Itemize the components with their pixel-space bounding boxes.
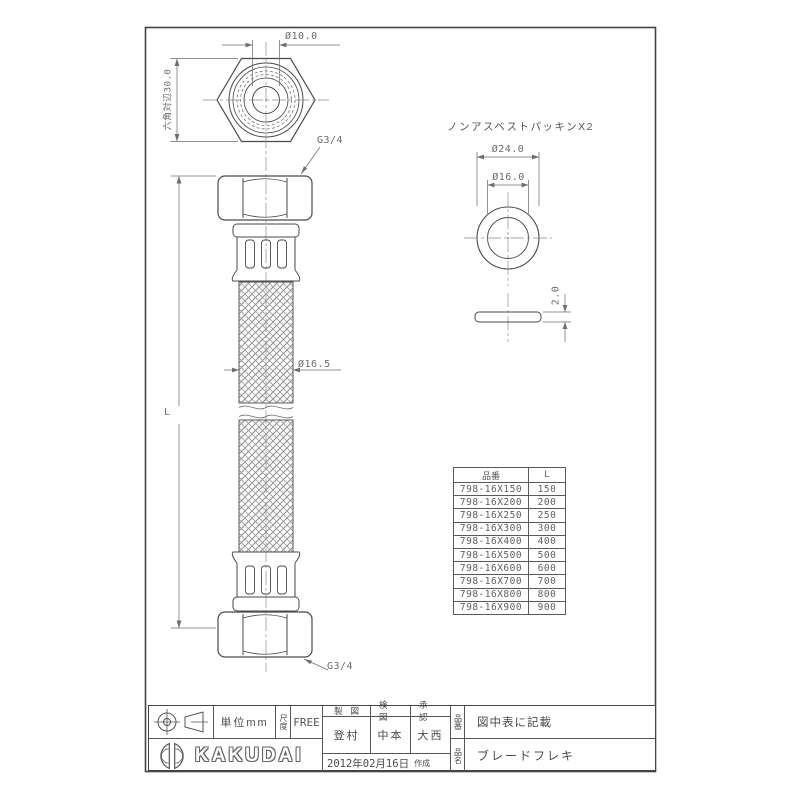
table-row: 798-16X900 900 [454,601,566,614]
scale-label: 尺度 [276,706,291,739]
length-cell: 500 [529,548,566,561]
length-cell: 900 [529,601,566,614]
length-cell: 300 [529,522,566,535]
length-cell: 800 [529,588,566,601]
length-cell: 400 [529,535,566,548]
part-no-cell: 798-16X900 [454,601,529,614]
packing-centerlines [464,192,552,342]
drawn-label: 製図 [334,705,367,717]
length-cell: 700 [529,575,566,588]
part-no-cell: 798-16X400 [454,535,529,548]
packing-id-dim-label: Ø16.0 [486,172,531,183]
brand-cell: KAKUDAI [149,739,323,772]
third-angle-projection-icon [151,707,211,737]
length-dim-label: L [162,407,173,418]
size-table: 品番 L 798-16X150 150 798-16X200 200 798-1… [453,467,566,615]
drawn-by-cell: 登村 [323,717,371,754]
table-row: 798-16X300 300 [454,522,566,535]
part-no-cell: 798-16X800 [454,588,529,601]
date-cell: 2012年02月16日 作成 [323,754,451,772]
product-name-label-cell: 品名 [451,739,465,772]
table-row: 798-16X200 200 [454,496,566,509]
unit-cell: 単位mm [214,706,276,739]
scale-value: FREE [291,716,322,729]
across-flats-dim-label: 六角対辺30.0 [161,50,174,150]
drawn-header-cell: 製図 [323,706,371,717]
table-row: 798-16X500 500 [454,548,566,561]
table-row: 798-16X800 800 [454,588,566,601]
product-name-label: 品名 [454,748,462,764]
brand-name: KAKUDAI [195,745,304,767]
part-no-label-cell: 品番 [451,706,465,739]
part-no-cell: 798-16X600 [454,562,529,575]
table-row: 798-16X700 700 [454,575,566,588]
drawn-by: 登村 [334,727,360,743]
approved-header-cell: 承認 [411,706,451,717]
part-no-cell: 798-16X250 [454,509,529,522]
part-no-cell: 798-16X300 [454,522,529,535]
scale-cell: 尺度 FREE [276,706,323,739]
drawing-canvas [0,0,800,800]
packing-title: ノンアスベストパッキンX2 [447,119,594,134]
approved-by: 大西 [418,727,444,743]
table-row: 798-16X150 150 [454,483,566,496]
creation-date-suffix: 作成 [414,758,430,769]
dim-length [171,176,216,628]
length-cell: 150 [529,483,566,496]
drawing-frame [146,28,656,772]
product-name-value-cell: ブレードフレキ [465,739,655,772]
hex-nut-lower-front [218,612,312,657]
packing-thickness-dim-label: 2.0 [551,278,562,314]
hex-nut-upper-front [218,176,312,220]
part-no-cell: 798-16X200 [454,496,529,509]
checked-header-cell: 検図 [371,706,411,717]
part-no-value-cell: 図中表に記載 [465,706,655,739]
product-name-value: ブレードフレキ [477,747,575,764]
table-row: 798-16X600 600 [454,562,566,575]
part-no-cell: 798-16X150 [454,483,529,496]
table-row: 798-16X400 400 [454,535,566,548]
part-no-label: 品番 [454,714,462,730]
title-block: 単位mm 尺度 FREE KAKUDAI 製図 検図 承認 登村 中本 大西 2… [148,705,656,771]
bore-dim-label: Ø10.0 [285,31,318,42]
checked-by-cell: 中本 [371,717,411,754]
part-no-header: 品番 [454,468,529,483]
packing-od-dim-label: Ø24.0 [477,144,539,155]
part-no-value: 図中表に記載 [477,714,552,730]
approved-by-cell: 大西 [411,717,451,754]
table-row: 798-16X250 250 [454,509,566,522]
projection-symbol-cell [149,706,214,739]
thread-label-bottom: G3/4 [327,661,353,672]
length-cell: 200 [529,496,566,509]
size-table-header-row: 品番 L [454,468,566,483]
part-no-cell: 798-16X500 [454,548,529,561]
checked-by: 中本 [378,727,404,743]
length-cell: 600 [529,562,566,575]
kakudai-logo-icon [157,741,187,771]
length-cell: 250 [529,509,566,522]
thread-label-top: G3/4 [317,135,343,146]
length-header: L [529,468,566,483]
hose-od-dim-label: Ø16.5 [298,359,331,370]
creation-date: 2012年02月16日 [327,756,409,771]
unit-label: 単位mm [220,714,268,730]
part-no-cell: 798-16X700 [454,575,529,588]
